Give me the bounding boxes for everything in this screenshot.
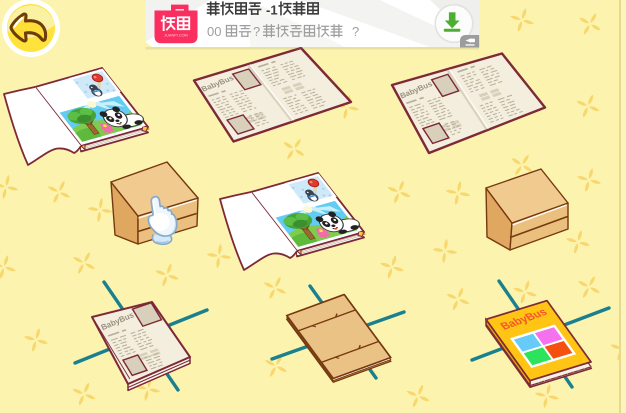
svg-text:-1: -1	[266, 3, 278, 18]
svg-text:00: 00	[207, 24, 221, 39]
svg-text:?: ?	[253, 24, 260, 39]
svg-text:?: ?	[352, 24, 359, 39]
svg-text:JUANPI.COM: JUANPI.COM	[164, 34, 187, 38]
